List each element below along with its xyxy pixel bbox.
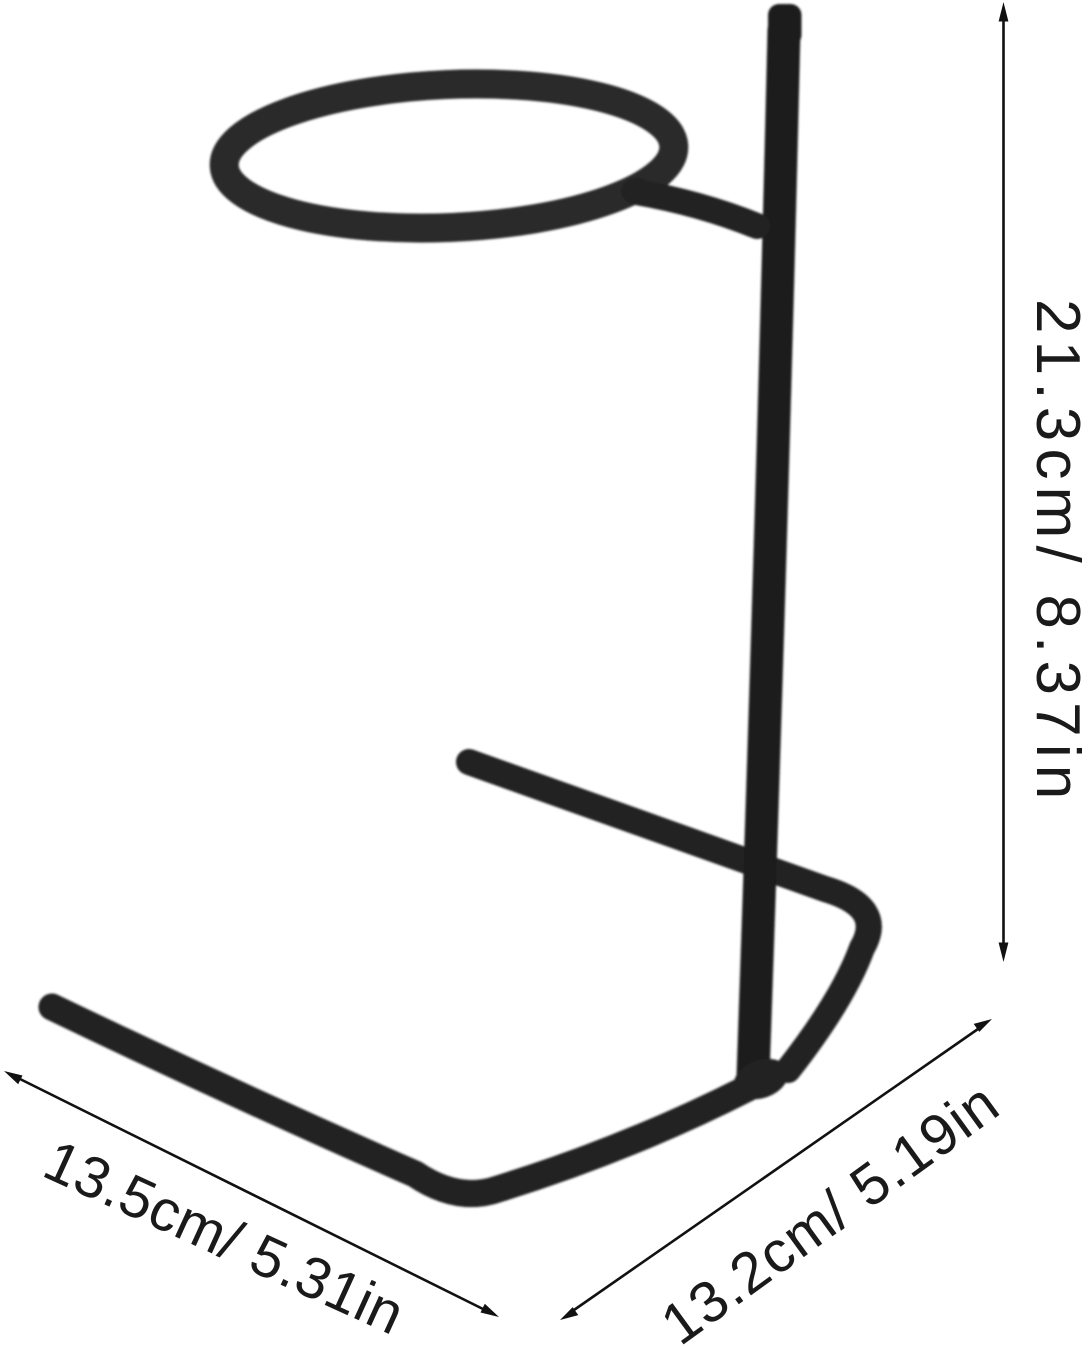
svg-text:21.3cm/ 8.37in: 21.3cm/ 8.37in xyxy=(1023,299,1089,807)
